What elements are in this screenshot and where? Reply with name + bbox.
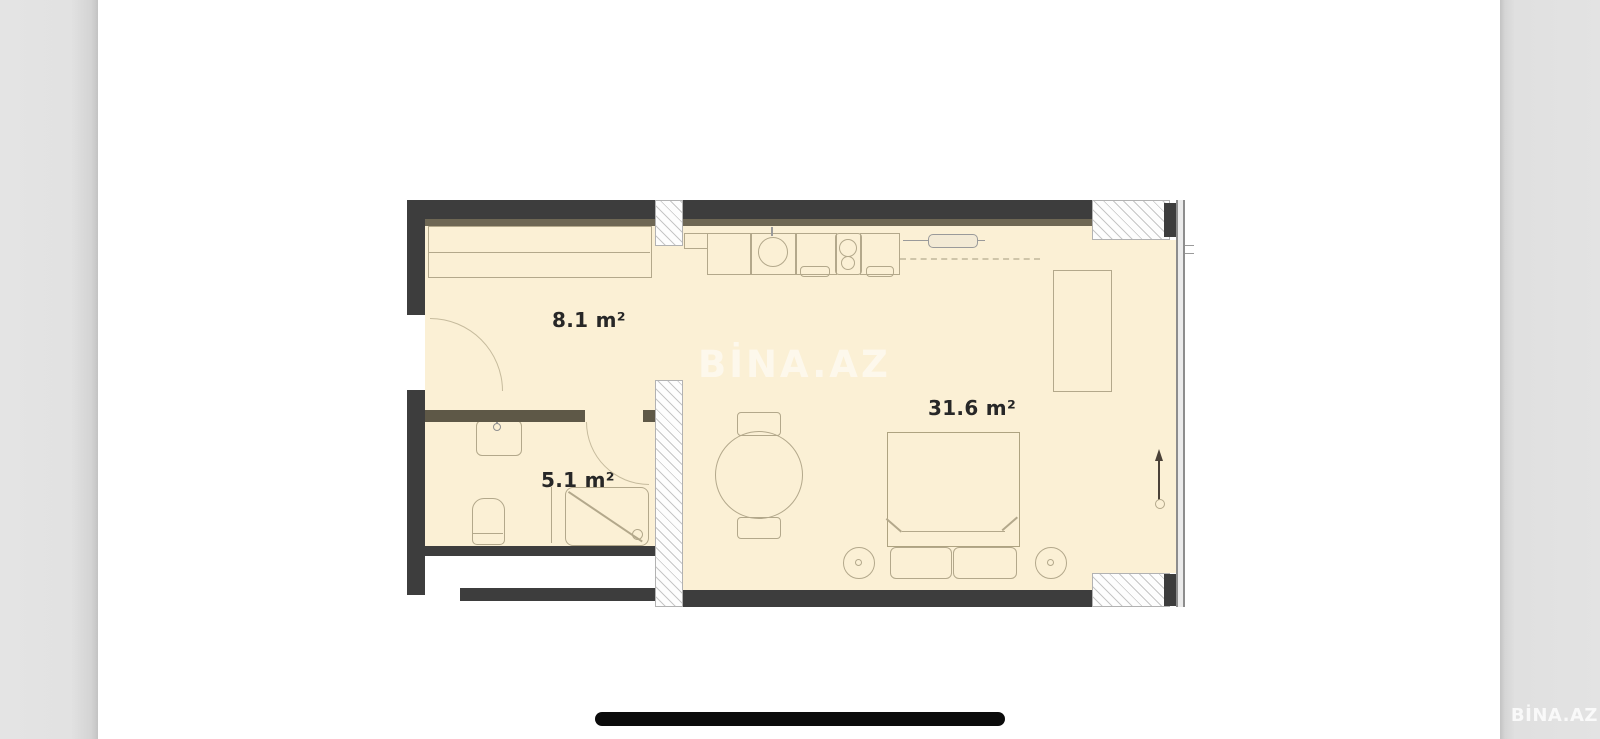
- dining-chair-bottom: [737, 517, 781, 539]
- kitchen-sink-basin: [758, 237, 788, 267]
- wall-bathroom-bottom: [425, 546, 655, 556]
- dining-table: [715, 431, 803, 519]
- watermark-center: BİNA.AZ: [698, 343, 891, 386]
- void-below-bathroom: [425, 556, 655, 590]
- wardrobe: [1053, 270, 1112, 392]
- watermark-corner: BİNA.AZ: [1511, 705, 1598, 726]
- nightstand-right-dot: [1047, 559, 1054, 566]
- direction-arrow-line: [1158, 460, 1160, 500]
- washbasin-faucet-dot: [493, 423, 501, 431]
- wall-shadow-right: [683, 219, 1092, 226]
- wall-shadow-left: [425, 219, 655, 226]
- area-label-hallway: 8.1 m²: [552, 308, 626, 332]
- kitchen-faucet: [771, 227, 773, 236]
- toilet: [472, 498, 505, 545]
- stove-burner-small: [841, 256, 855, 270]
- area-label-living-room: 31.6 m²: [928, 396, 1016, 420]
- nightstand-left-dot: [855, 559, 862, 566]
- double-bed: [887, 432, 1020, 547]
- bed-blanket-line: [902, 531, 1005, 532]
- wall-bottom-outer: [460, 588, 655, 601]
- stove-burner-large: [839, 239, 857, 257]
- previous-photo-strip[interactable]: [0, 0, 98, 739]
- pillow-left: [890, 547, 952, 579]
- wall-top-left: [407, 200, 655, 219]
- kitchen-counter-step: [684, 233, 708, 249]
- window-hatch-bottom-right: [1092, 573, 1170, 607]
- wall-bottom-main: [683, 590, 1092, 607]
- pillow-right: [953, 547, 1017, 579]
- shower-screen: [551, 487, 552, 543]
- facade-tick1: [1185, 245, 1194, 246]
- structural-column-hatch-middle: [655, 380, 683, 607]
- photo-carousel: 8.1 m² 5.1 m² 31.6 m² BİNA.AZ BİNA.AZ: [0, 0, 1600, 739]
- wall-top-right: [683, 200, 1092, 219]
- overhead-dashed-line: [900, 258, 1040, 260]
- area-label-bathroom: 5.1 m²: [541, 468, 615, 492]
- home-indicator[interactable]: [595, 712, 1005, 726]
- cabinet-handle2: [866, 266, 894, 277]
- direction-arrow-head: [1155, 449, 1163, 461]
- cabinet-handle: [800, 266, 830, 277]
- shower-drain: [632, 529, 643, 540]
- window-hatch-top-right: [1092, 200, 1170, 240]
- kitchen-counter-unit: [707, 233, 752, 275]
- facade-tick2: [1185, 253, 1194, 254]
- toilet-tank-line: [472, 533, 503, 534]
- hallway-closet-shelf-line: [428, 252, 650, 253]
- next-photo-strip[interactable]: [1500, 0, 1600, 739]
- wall-left-upper: [407, 200, 425, 315]
- radiator: [928, 234, 978, 248]
- glass-facade: [1176, 200, 1185, 607]
- wall-bathroom-top: [425, 410, 585, 422]
- wall-left-lower: [407, 390, 425, 595]
- wall-door-stub: [643, 410, 655, 422]
- direction-arrow-base: [1155, 499, 1165, 509]
- structural-column-hatch-top: [655, 200, 683, 246]
